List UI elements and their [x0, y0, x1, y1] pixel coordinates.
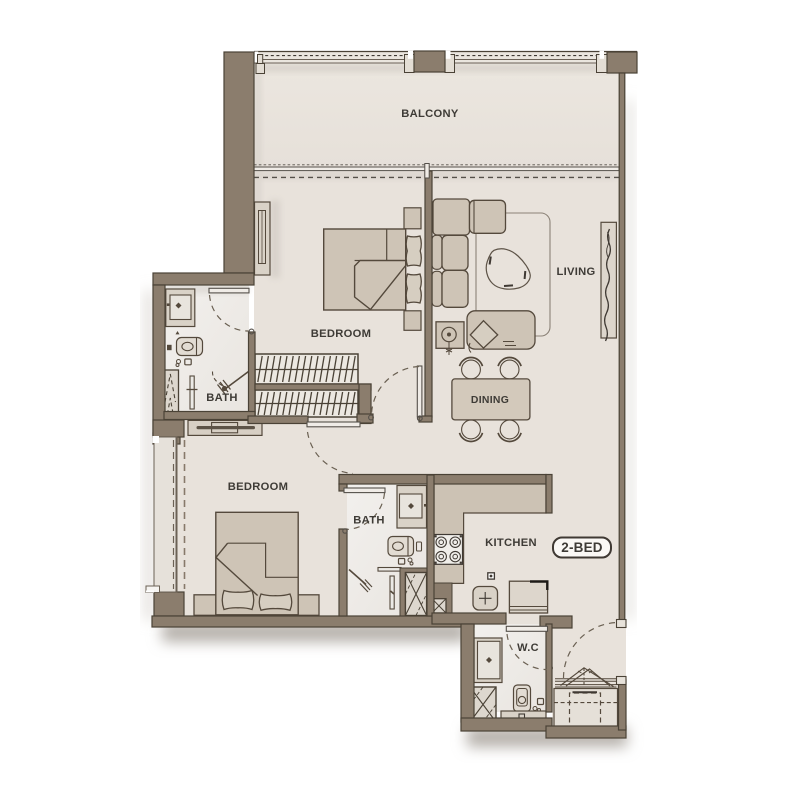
svg-text:BATH: BATH: [353, 515, 384, 527]
svg-text:BEDROOM: BEDROOM: [228, 481, 289, 493]
svg-text:W.C: W.C: [517, 642, 539, 654]
svg-text:DINING: DINING: [471, 395, 509, 406]
svg-text:BATH: BATH: [206, 392, 237, 404]
svg-text:KITCHEN: KITCHEN: [485, 537, 537, 549]
svg-text:BALCONY: BALCONY: [401, 108, 459, 120]
svg-text:2-BED: 2-BED: [561, 540, 603, 555]
svg-text:BEDROOM: BEDROOM: [311, 328, 372, 340]
svg-text:LIVING: LIVING: [556, 266, 595, 278]
